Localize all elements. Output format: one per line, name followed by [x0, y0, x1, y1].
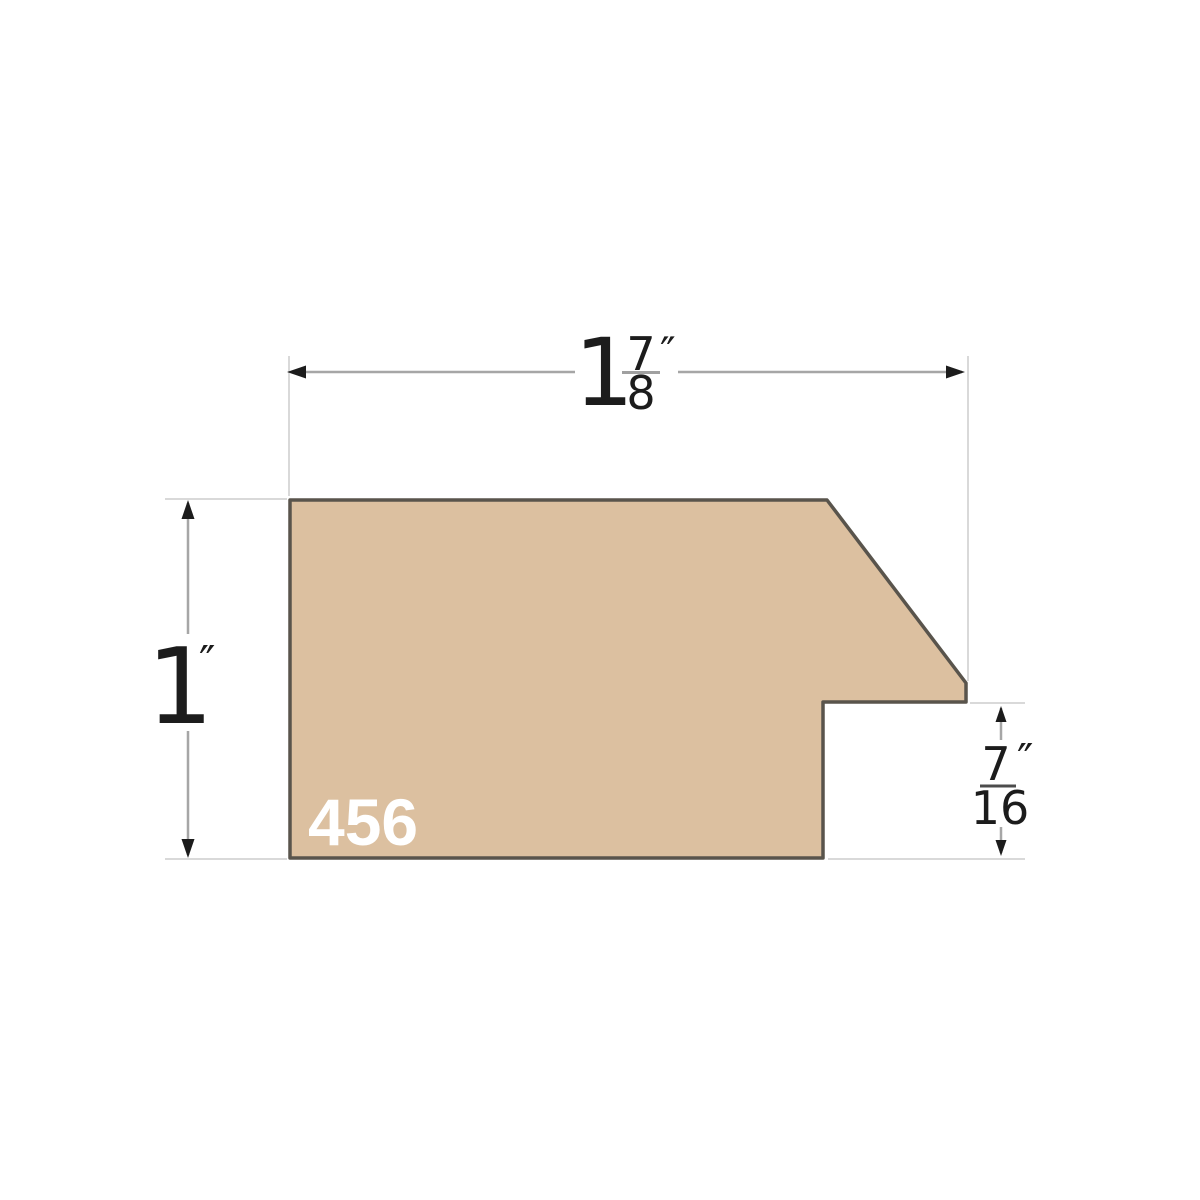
profile-number-label: 456 [308, 785, 418, 859]
diagram-canvas: 1 7 8 ″ 1 ″ 7 16 ″ 456 [0, 0, 1200, 1200]
width-inch-mark: ″ [660, 328, 676, 377]
rabbet-inch-mark: ″ [1017, 735, 1033, 786]
height-dimension-label: 1 ″ [147, 626, 216, 748]
width-fraction-denominator: 8 [626, 366, 655, 420]
moulding-profile-diagram: 1 7 8 ″ 1 ″ 7 16 ″ 456 [0, 0, 1200, 1200]
rabbet-fraction-denominator: 16 [971, 781, 1030, 835]
height-inch-mark: ″ [199, 637, 215, 688]
